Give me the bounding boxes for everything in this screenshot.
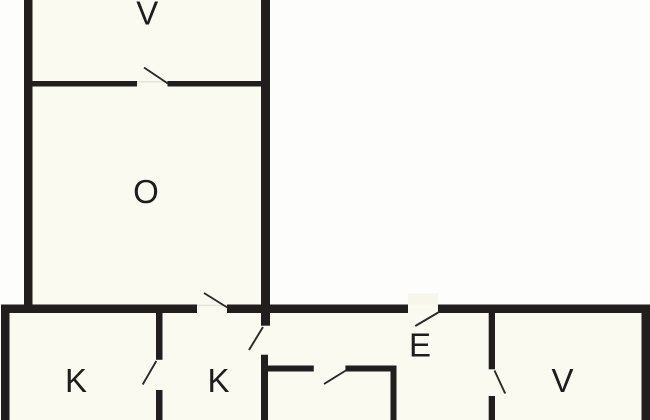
svg-text:K: K — [65, 362, 87, 399]
svg-text:K: K — [207, 362, 229, 399]
svg-text:O: O — [133, 173, 159, 210]
svg-text:E: E — [409, 327, 431, 364]
svg-text:V: V — [136, 0, 158, 32]
svg-text:V: V — [551, 362, 573, 399]
